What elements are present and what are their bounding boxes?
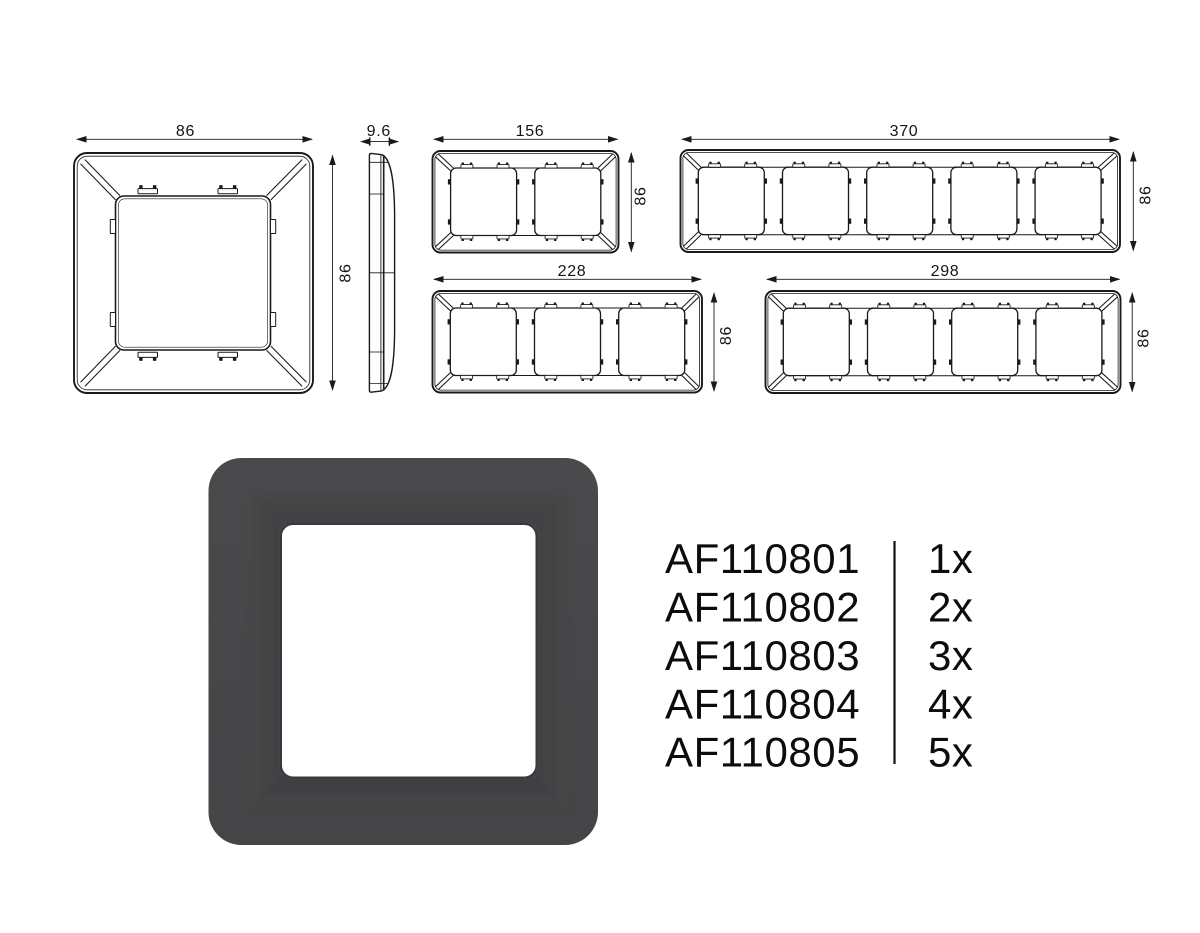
svg-text:2x: 2x (928, 584, 973, 631)
svg-text:86: 86 (176, 123, 195, 140)
svg-text:298: 298 (931, 263, 960, 280)
svg-text:86: 86 (338, 263, 355, 282)
svg-text:370: 370 (890, 123, 919, 140)
svg-text:5x: 5x (928, 729, 973, 776)
svg-text:AF110801: AF110801 (665, 535, 860, 582)
svg-text:AF110804: AF110804 (665, 680, 860, 727)
svg-text:86: 86 (632, 186, 649, 205)
svg-text:86: 86 (718, 326, 735, 345)
svg-text:AF110802: AF110802 (665, 584, 860, 631)
svg-text:86: 86 (1136, 328, 1153, 347)
svg-text:AF110803: AF110803 (665, 632, 860, 679)
svg-text:3x: 3x (928, 632, 973, 679)
svg-text:156: 156 (516, 123, 545, 140)
svg-text:86: 86 (1137, 185, 1154, 204)
svg-text:228: 228 (558, 263, 587, 280)
svg-text:9.6: 9.6 (367, 123, 391, 140)
svg-text:AF110805: AF110805 (665, 729, 860, 776)
svg-text:1x: 1x (928, 535, 973, 582)
svg-text:4x: 4x (928, 680, 973, 727)
